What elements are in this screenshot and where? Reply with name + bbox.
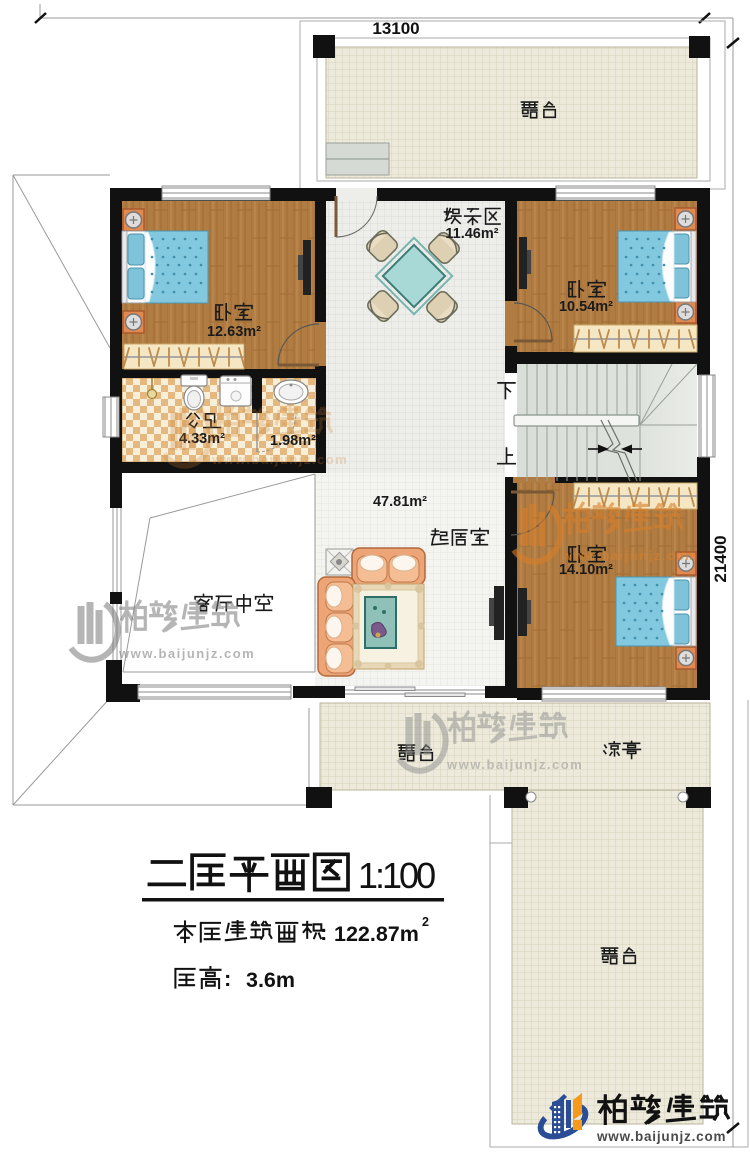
svg-text:3.6m: 3.6m (246, 968, 295, 992)
svg-text:www.baijunjz.com: www.baijunjz.com (118, 646, 255, 661)
svg-text:14.10m²: 14.10m² (559, 562, 613, 578)
svg-text:12.63m²: 12.63m² (207, 324, 261, 340)
svg-text:www.baijunjz.com: www.baijunjz.com (211, 452, 348, 467)
svg-text:www.baijunjz.com: www.baijunjz.com (596, 1129, 726, 1144)
svg-text:10.54m²: 10.54m² (559, 299, 613, 315)
svg-text:www.baijunjz.com: www.baijunjz.com (446, 757, 583, 772)
svg-text:1:100: 1:100 (358, 855, 435, 896)
svg-text:13100: 13100 (372, 19, 419, 38)
svg-text:122.87m: 122.87m (334, 922, 419, 946)
svg-text:11.46m²: 11.46m² (445, 226, 498, 242)
svg-text:2: 2 (422, 915, 429, 929)
svg-text::: : (224, 966, 231, 991)
svg-text:47.81m²: 47.81m² (373, 494, 427, 510)
svg-text:www.baijunjz.com: www.baijunjz.com (561, 548, 698, 563)
svg-text:21400: 21400 (711, 535, 730, 582)
svg-text::: : (320, 920, 327, 945)
